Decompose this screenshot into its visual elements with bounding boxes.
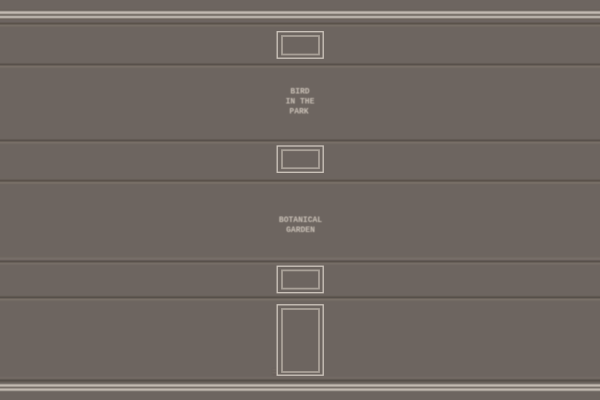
svg-text:BIRD: BIRD [290, 88, 309, 97]
svg-text:BOTANICAL: BOTANICAL [279, 216, 322, 225]
svg-text:GARDEN: GARDEN [286, 226, 315, 235]
svg-text:PARK: PARK [289, 108, 308, 117]
svg-text:IN THE: IN THE [286, 98, 315, 107]
